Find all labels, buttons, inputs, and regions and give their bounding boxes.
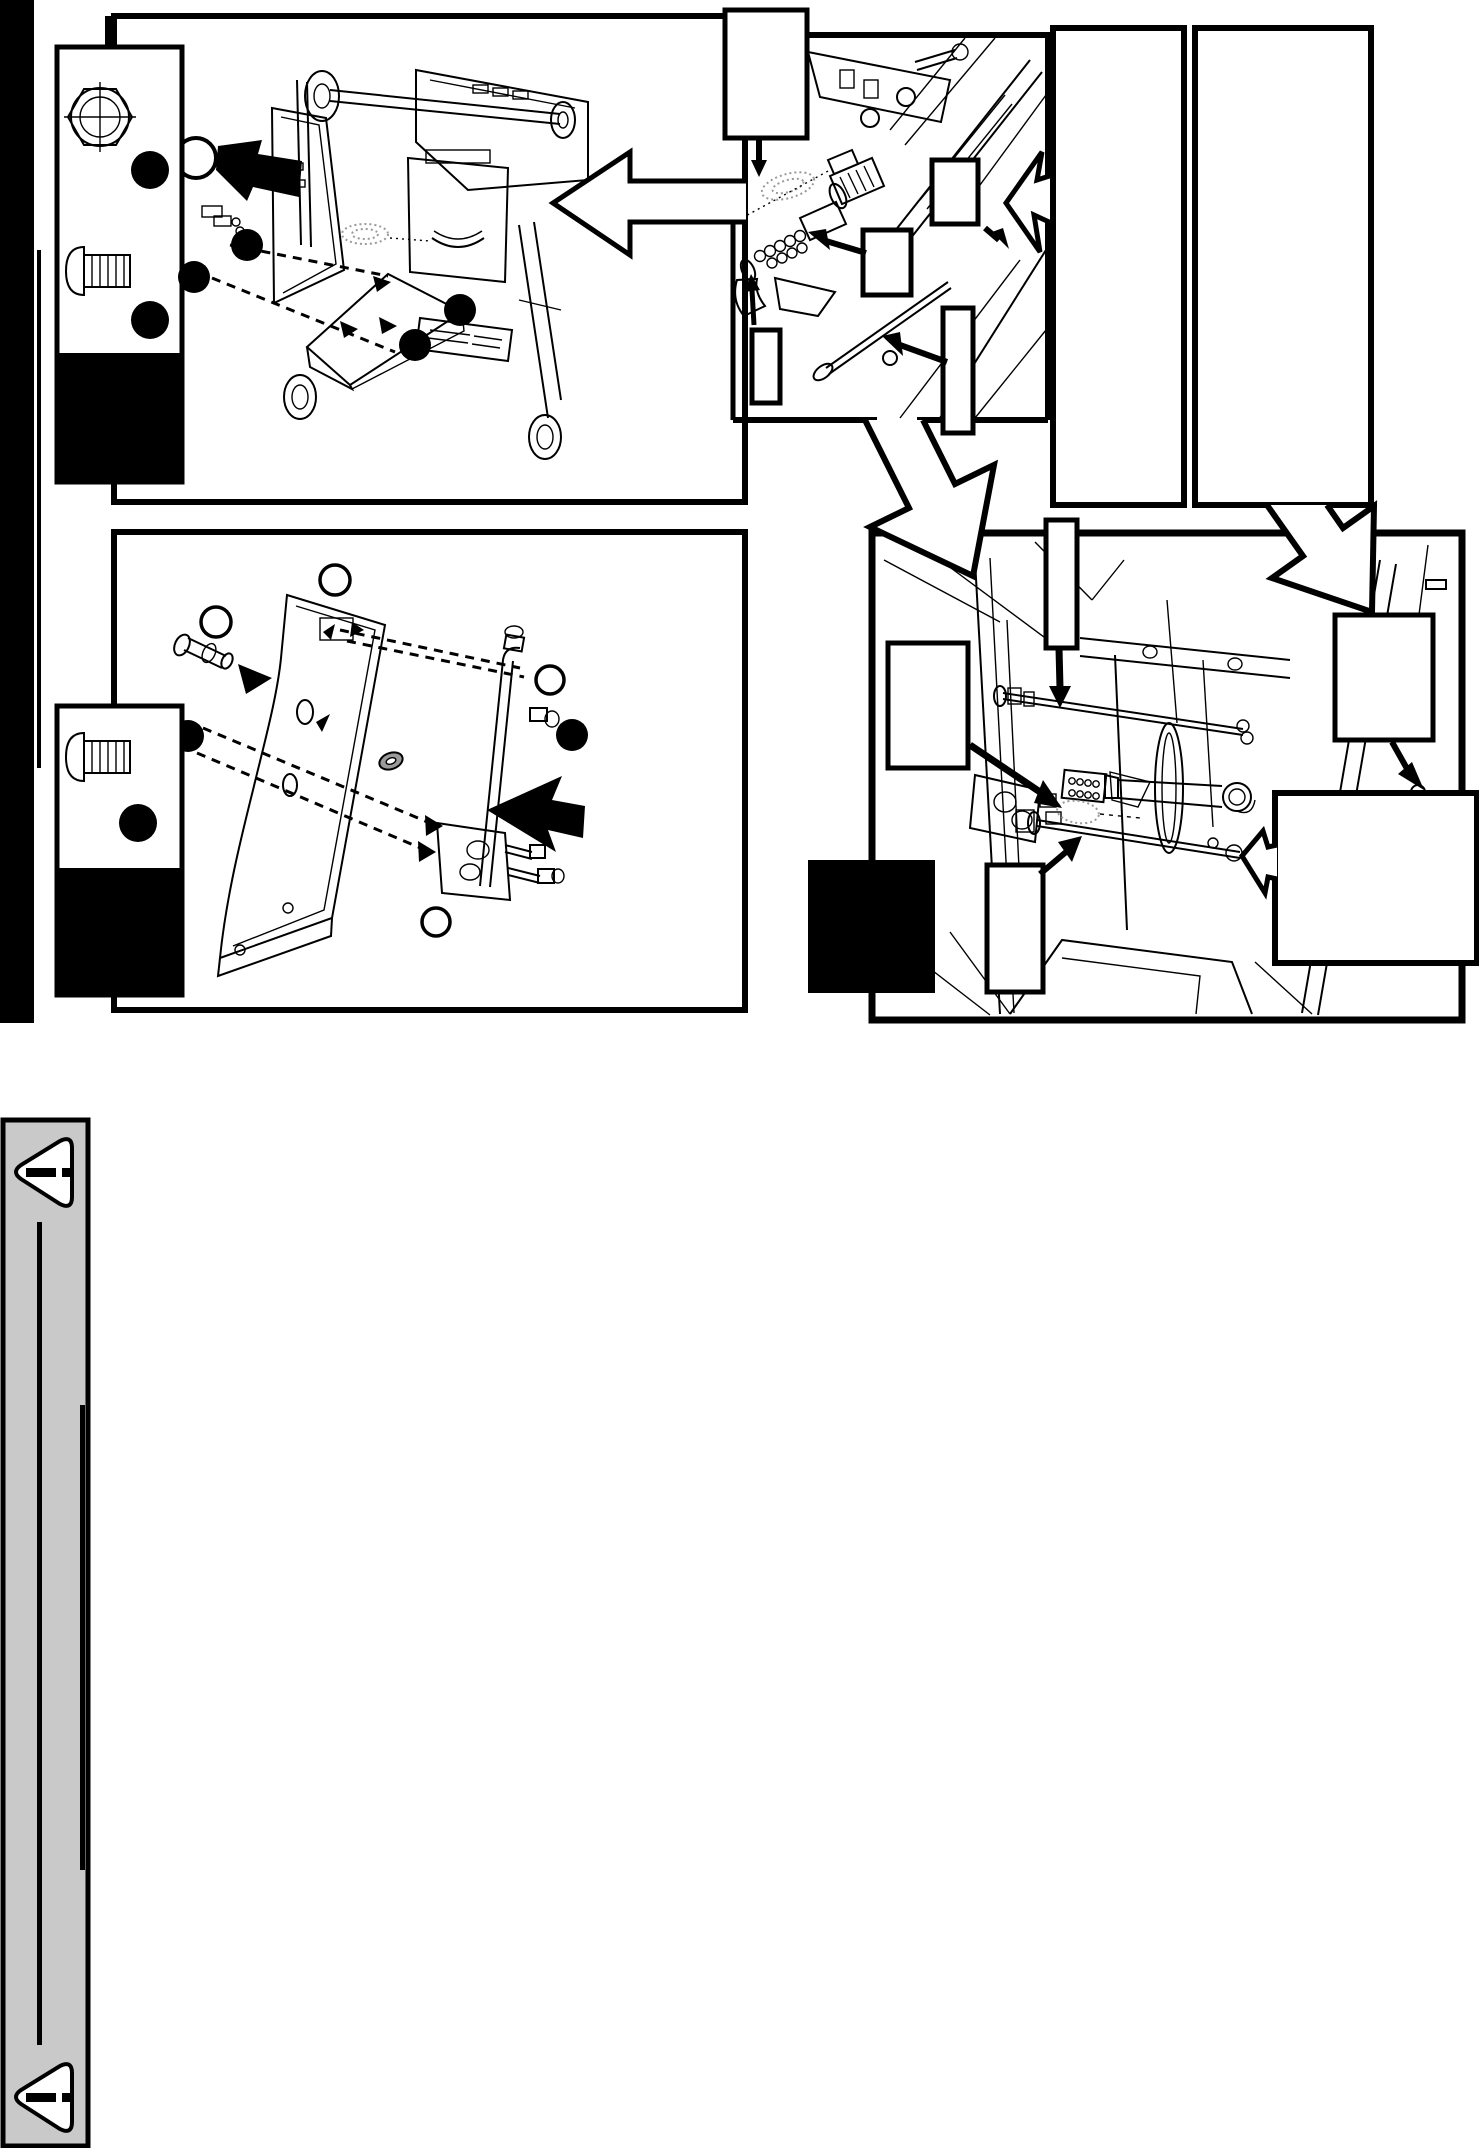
down-arrow (1049, 686, 1071, 708)
sidebar-rule (37, 1222, 42, 2045)
page-artwork (0, 0, 1479, 2148)
left-margin-bar (0, 0, 41, 1023)
callout-box-empty (1335, 615, 1433, 740)
hollow-down-arrow-right (1267, 505, 1374, 612)
callout-ring (536, 666, 564, 694)
callout-dot (119, 804, 157, 842)
callout-ring (320, 565, 350, 595)
hollow-down-arrow-left (865, 420, 994, 576)
side-panel-drawing (171, 595, 585, 976)
panel-top-left (108, 16, 745, 502)
hardware-legend-middle (57, 706, 182, 995)
callout-dot (399, 329, 431, 361)
callout-box-empty (888, 643, 968, 768)
callout-box-empty (1275, 793, 1477, 963)
callout-box-empty (932, 160, 978, 224)
callout-dot (444, 294, 476, 326)
callout-box-empty (752, 330, 780, 403)
cart-assembly-drawing (202, 70, 588, 459)
right-arrow-icon (216, 140, 302, 201)
callout-ring (201, 607, 231, 637)
reference-box-empty (1195, 28, 1371, 505)
callout-box-empty (943, 308, 973, 433)
reference-box-empty (1053, 28, 1184, 505)
callout-box-filled-black (808, 860, 935, 993)
callout-box-empty (1046, 520, 1077, 648)
hollow-left-arrow (553, 152, 746, 255)
legend-footer-black (57, 868, 182, 995)
callout-dot (178, 261, 210, 293)
left-margin-rule (37, 250, 41, 768)
sidebar-rule-2 (80, 1405, 85, 1870)
hardware-legend-top (57, 47, 182, 482)
big-left-arrow (487, 776, 585, 852)
callout-box-empty (987, 865, 1043, 992)
diag-arrow (1398, 762, 1424, 790)
callout-dot (131, 301, 169, 339)
callout-ring (422, 908, 450, 936)
callout-box-empty (863, 230, 911, 295)
panel-middle-left (114, 532, 745, 1010)
small-right-arrow (238, 664, 272, 694)
callout-dot (131, 151, 169, 189)
callout-dot (231, 229, 263, 261)
circle-callout-with-arrow (176, 138, 302, 201)
callout-dot (556, 719, 588, 751)
hollow-left-arrow-callout (1242, 831, 1277, 893)
callout-box-empty (725, 10, 807, 138)
manual-page (0, 0, 1479, 2148)
legend-footer-black (57, 353, 182, 482)
warning-sidebar (3, 1120, 88, 2146)
